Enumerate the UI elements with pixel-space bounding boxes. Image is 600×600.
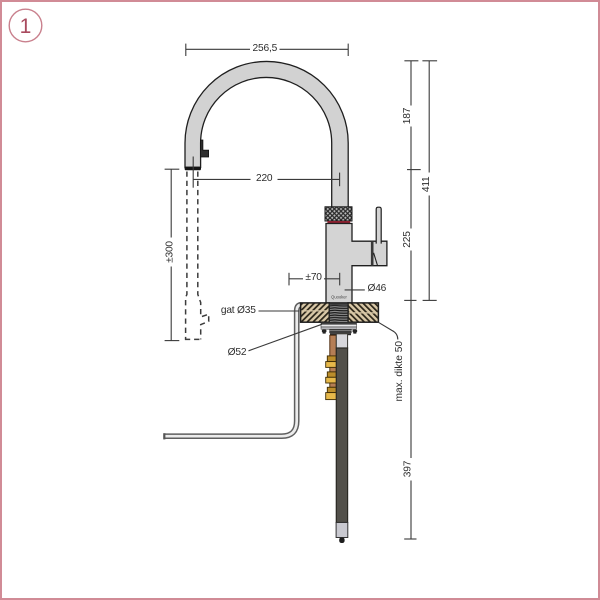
svg-text:397: 397 (403, 460, 414, 477)
svg-text:gat Ø35: gat Ø35 (221, 305, 256, 316)
svg-text:225: 225 (402, 231, 413, 248)
svg-text:Ø52: Ø52 (228, 347, 247, 358)
svg-text:411: 411 (421, 176, 432, 192)
svg-text:Ø46: Ø46 (367, 283, 386, 294)
svg-text:max. dikte 50: max. dikte 50 (394, 341, 405, 402)
svg-text:256,5: 256,5 (253, 43, 278, 54)
svg-text:±300: ±300 (165, 241, 176, 263)
svg-text:1: 1 (20, 15, 32, 38)
svg-text:±70: ±70 (305, 272, 322, 283)
svg-text:187: 187 (402, 107, 413, 124)
svg-text:220: 220 (256, 173, 273, 184)
svg-text:Quooker: Quooker (331, 294, 347, 299)
